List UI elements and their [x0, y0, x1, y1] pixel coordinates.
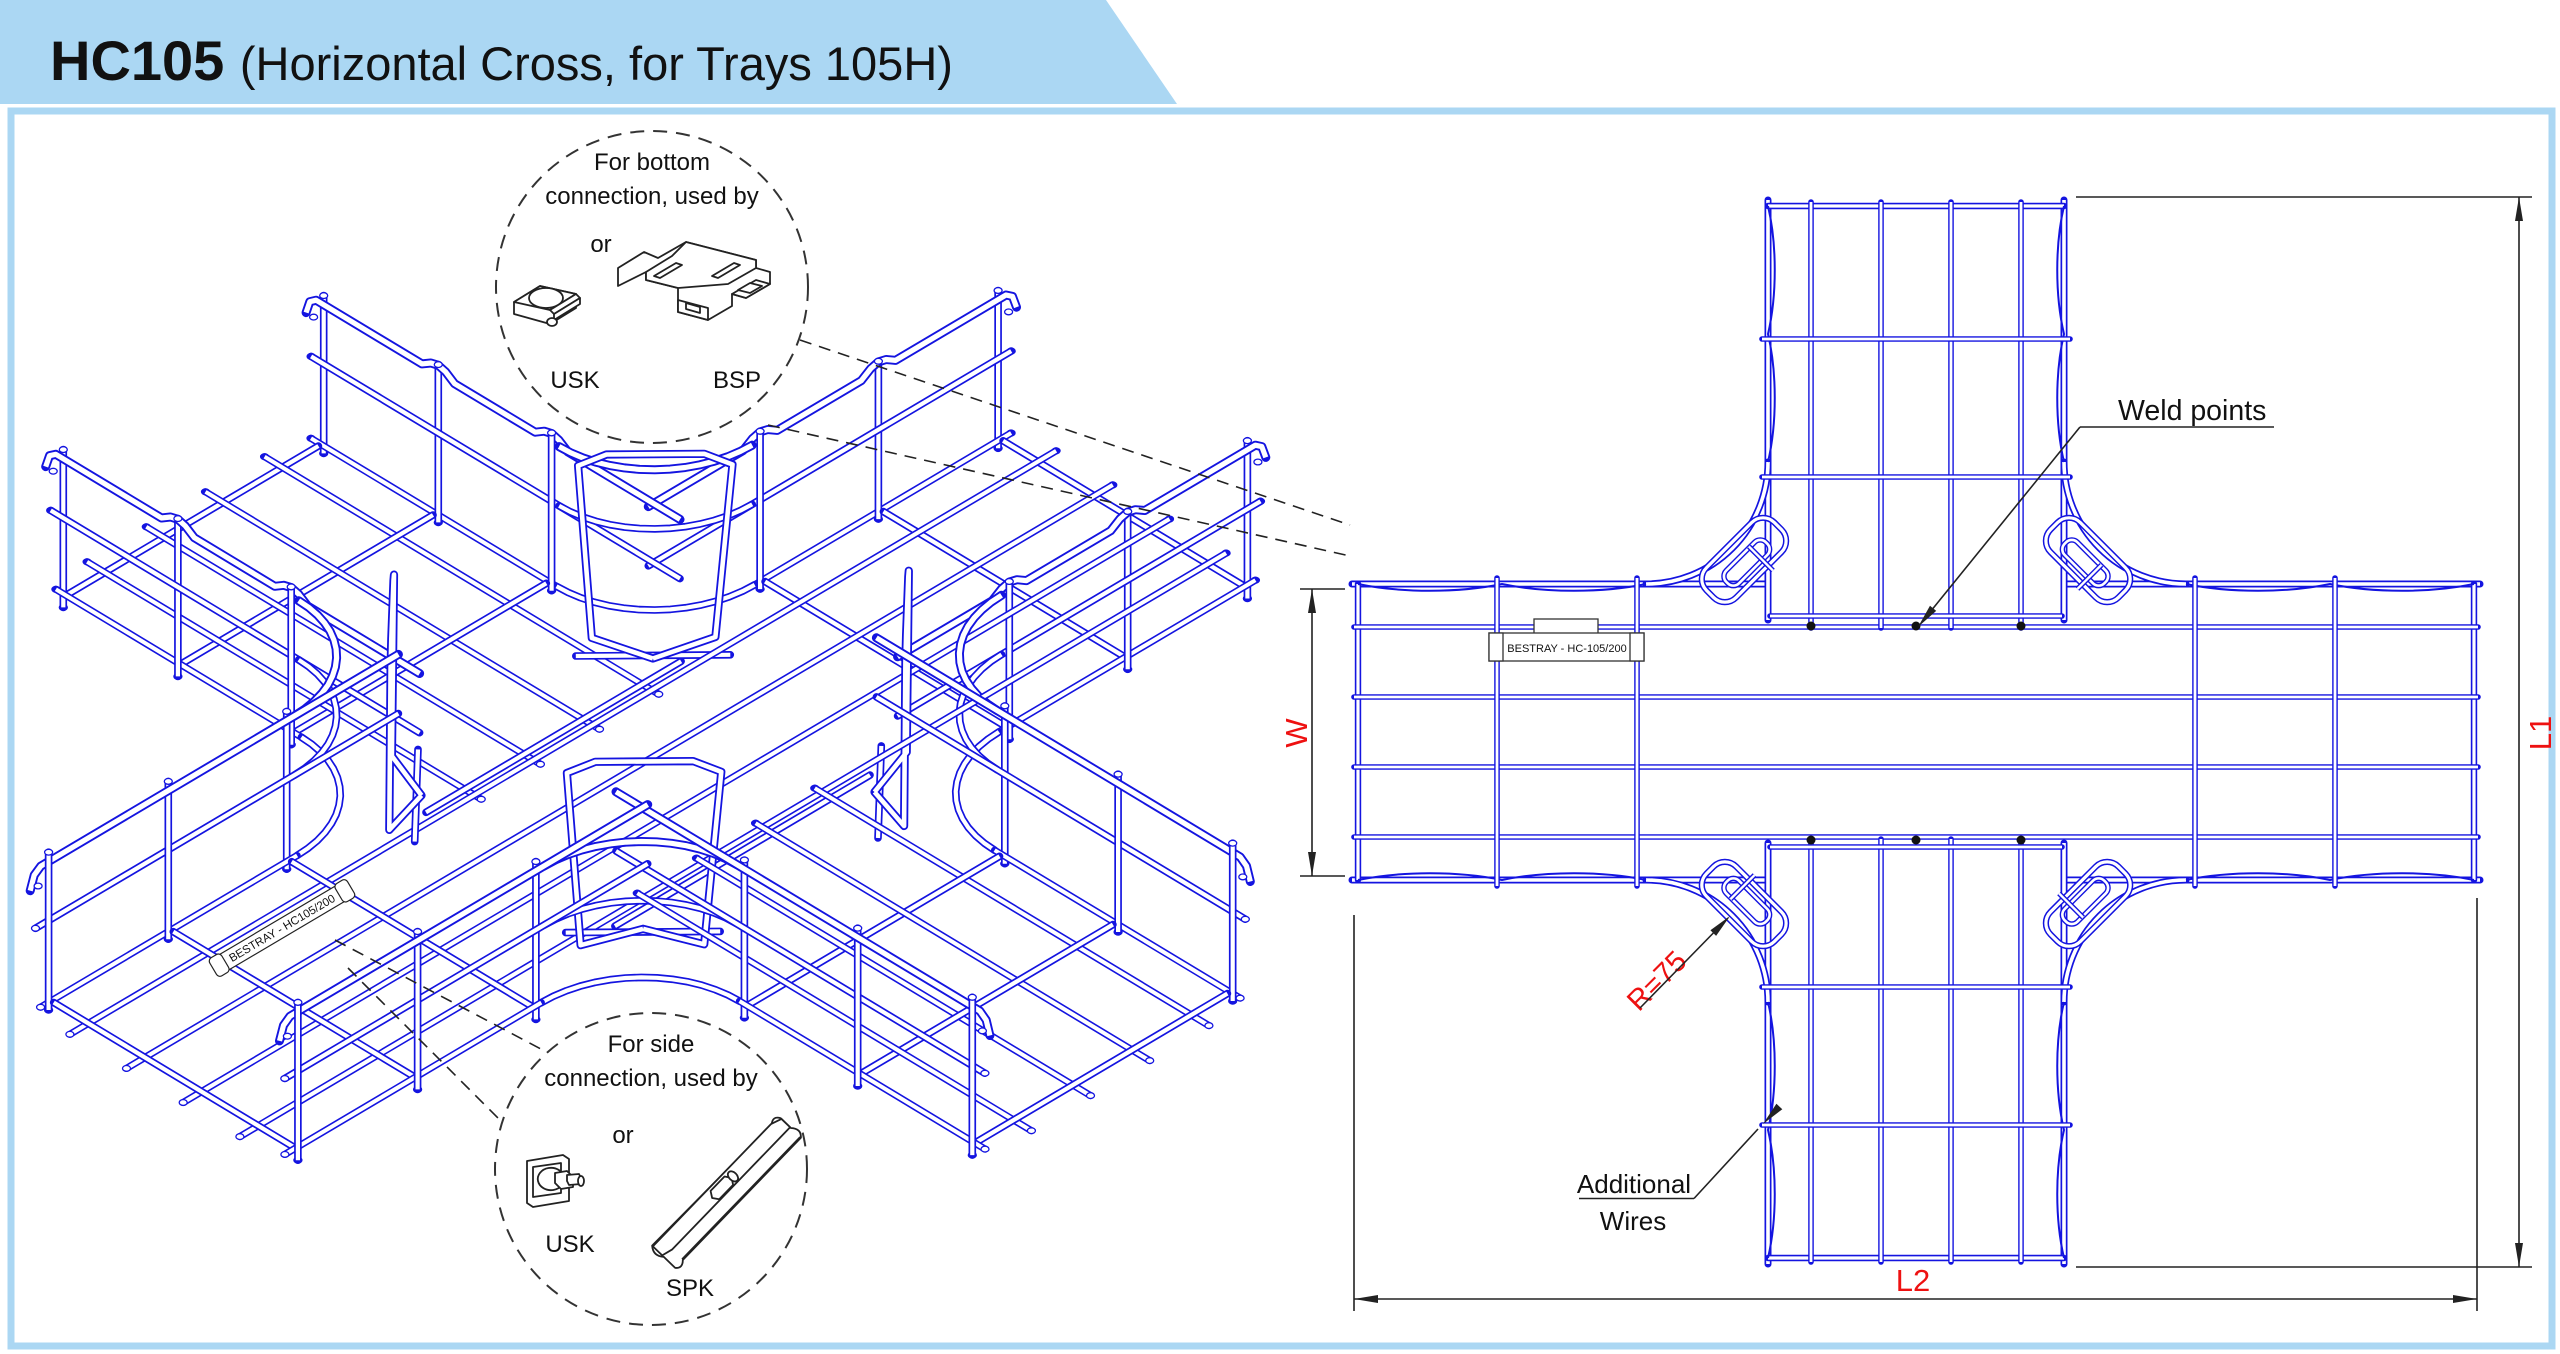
- svg-text:Weld points: Weld points: [2118, 395, 2266, 427]
- svg-text:USK: USK: [545, 1231, 594, 1258]
- svg-text:W: W: [1279, 718, 1314, 748]
- svg-text:For bottom: For bottom: [594, 149, 710, 176]
- svg-text:BESTRAY - HC-105/200: BESTRAY - HC-105/200: [1507, 643, 1626, 655]
- svg-text:or: or: [590, 231, 611, 258]
- svg-text:HC105 (Horizontal Cross, for T: HC105 (Horizontal Cross, for Trays 105H): [50, 29, 953, 92]
- svg-text:For side: For side: [608, 1031, 695, 1058]
- svg-text:or: or: [612, 1122, 633, 1149]
- svg-text:L2: L2: [1896, 1263, 1930, 1298]
- svg-text:L1: L1: [2523, 716, 2558, 750]
- svg-text:BSP: BSP: [713, 367, 761, 394]
- svg-text:Wires: Wires: [1600, 1206, 1666, 1236]
- svg-text:SPK: SPK: [666, 1275, 714, 1302]
- svg-text:connection, used by: connection, used by: [545, 183, 758, 210]
- svg-text:USK: USK: [550, 367, 599, 394]
- svg-text:Additional: Additional: [1577, 1169, 1691, 1199]
- svg-text:connection, used by: connection, used by: [544, 1065, 757, 1092]
